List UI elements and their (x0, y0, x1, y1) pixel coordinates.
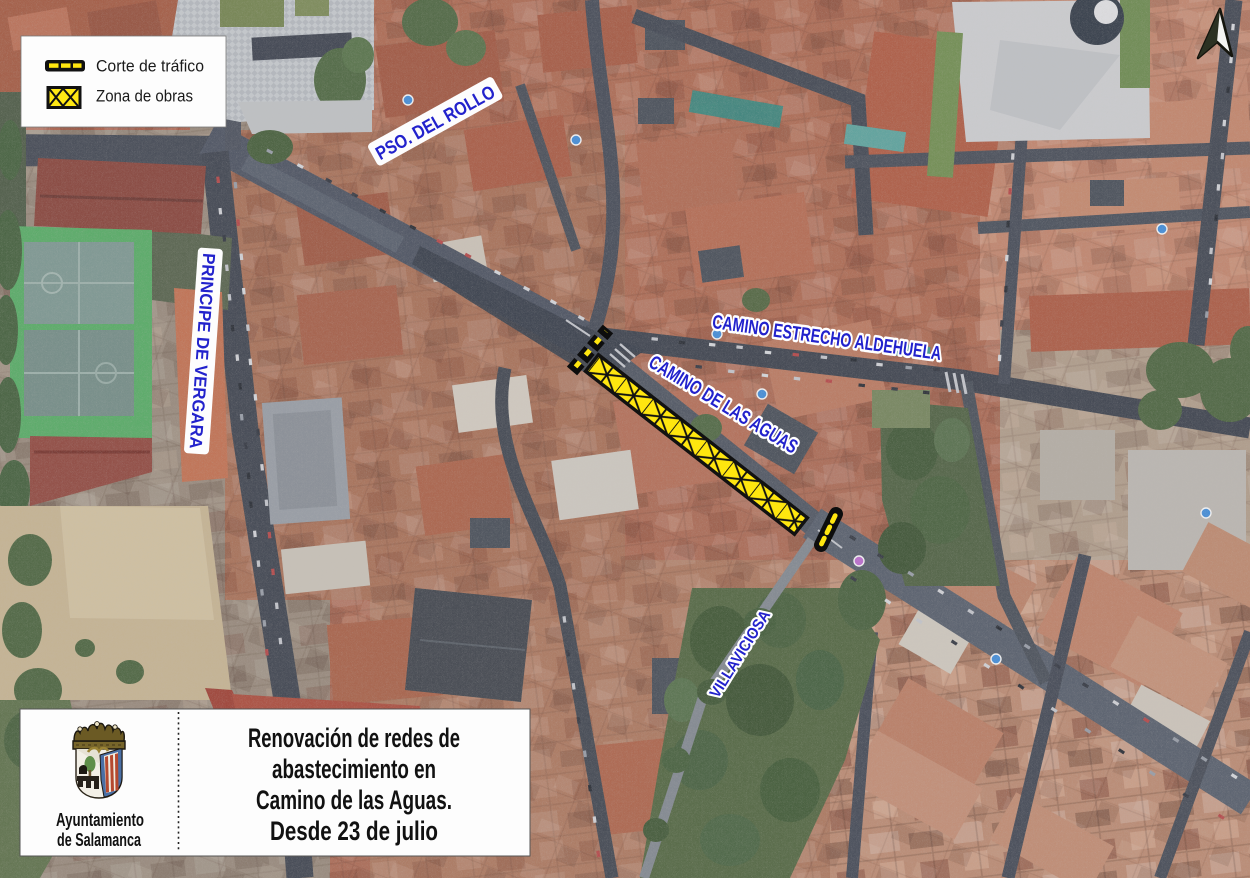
svg-text:Zona de obras: Zona de obras (96, 88, 193, 106)
svg-text:Camino de las Aguas.: Camino de las Aguas. (256, 785, 452, 815)
svg-text:de Salamanca: de Salamanca (57, 830, 142, 850)
svg-text:Desde 23 de julio: Desde 23 de julio (270, 816, 438, 846)
svg-text:Ayuntamiento: Ayuntamiento (56, 810, 144, 830)
svg-text:abastecimiento en: abastecimiento en (272, 754, 436, 784)
svg-text:Corte de tráfico: Corte de tráfico (96, 58, 204, 76)
svg-text:Renovación de redes de: Renovación de redes de (248, 723, 460, 753)
